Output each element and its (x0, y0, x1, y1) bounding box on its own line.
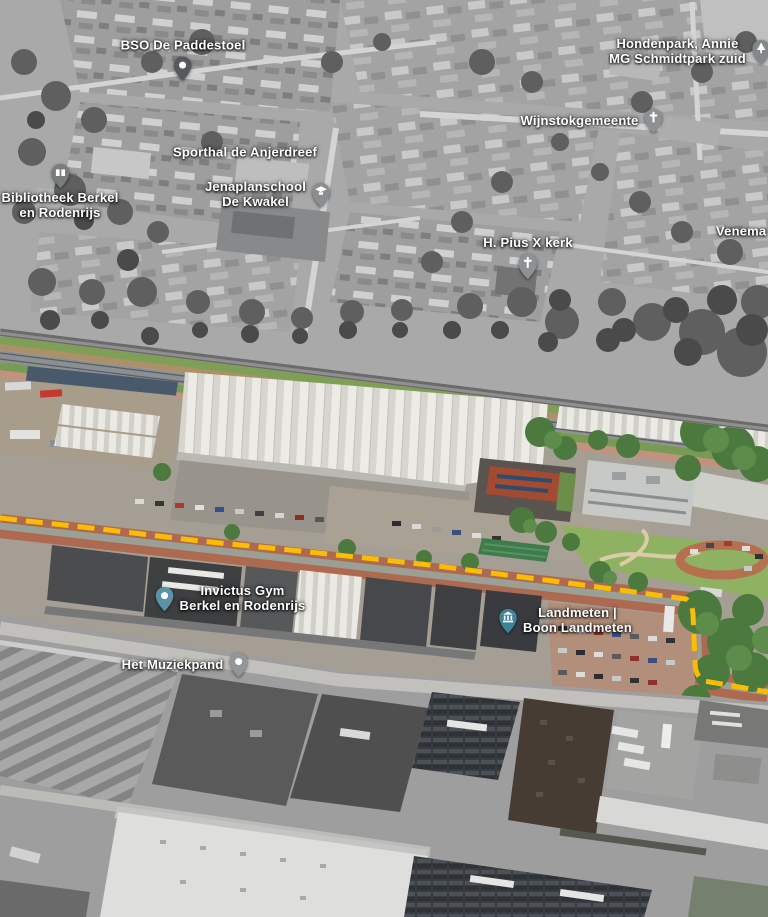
poi-label: Hondenpark, Annie MG Schmidtpark zuid (609, 37, 746, 67)
map-stage: BSO De Paddestoel Hondenpark, Annie MG S… (0, 0, 768, 917)
poi-label: H. Pius X kerk (483, 236, 573, 251)
place-pin-icon[interactable] (173, 55, 193, 81)
church-pin-icon[interactable] (517, 253, 538, 280)
poi-invictus-gym-berkel-en-rodenrijs[interactable]: Invictus Gym Berkel en Rodenrijs (155, 584, 306, 614)
poi-wijnstokgemeente[interactable]: Wijnstokgemeente (521, 108, 664, 134)
poi-h-pius-x-kerk[interactable]: H. Pius X kerk (483, 236, 573, 280)
poi-label: Landmeten | Boon Landmeten (523, 606, 632, 636)
poi-dot-pin-icon[interactable] (228, 652, 248, 678)
poi-label: BSO De Paddestoel (121, 39, 246, 54)
poi-label: Venema & (716, 225, 768, 240)
poi-label: Bibliotheek Berkel en Rodenrijs (1, 191, 118, 221)
poi-hondenpark-annie-mg-schmidtpark-zuid[interactable]: Hondenpark, Annie MG Schmidtpark zuid (609, 37, 768, 67)
landmark-bank-pin-icon[interactable] (498, 608, 518, 634)
poi-het-muziekpand[interactable]: Het Muziekpand (122, 652, 249, 678)
poi-label: Wijnstokgemeente (521, 114, 639, 129)
poi-venema[interactable]: Venema & (716, 225, 768, 240)
poi-jenaplanschool-de-kwakel[interactable]: Jenaplanschool De Kwakel (205, 180, 331, 210)
poi-bso-de-paddestoel[interactable]: BSO De Paddestoel (121, 39, 246, 82)
poi-dot-pin-icon[interactable] (155, 586, 175, 612)
poi-landmeten-boon-landmeten[interactable]: Landmeten | Boon Landmeten (498, 606, 632, 636)
park-tree-pin-icon[interactable] (751, 39, 768, 65)
poi-label: Het Muziekpand (122, 658, 224, 673)
poi-label: Sporthal de Anjerdreef (173, 146, 317, 161)
aerial-scene-canvas[interactable] (0, 0, 768, 917)
poi-sporthal-de-anjerdreef[interactable]: Sporthal de Anjerdreef (173, 146, 317, 161)
school-cap-pin-icon[interactable] (311, 182, 331, 208)
poi-label: Invictus Gym Berkel en Rodenrijs (180, 584, 306, 614)
poi-bibliotheek-berkel-en-rodenrijs[interactable]: Bibliotheek Berkel en Rodenrijs (1, 163, 118, 221)
library-book-pin-icon[interactable] (50, 163, 70, 189)
poi-label: Jenaplanschool De Kwakel (205, 180, 306, 210)
church-pin-icon[interactable] (643, 108, 663, 134)
